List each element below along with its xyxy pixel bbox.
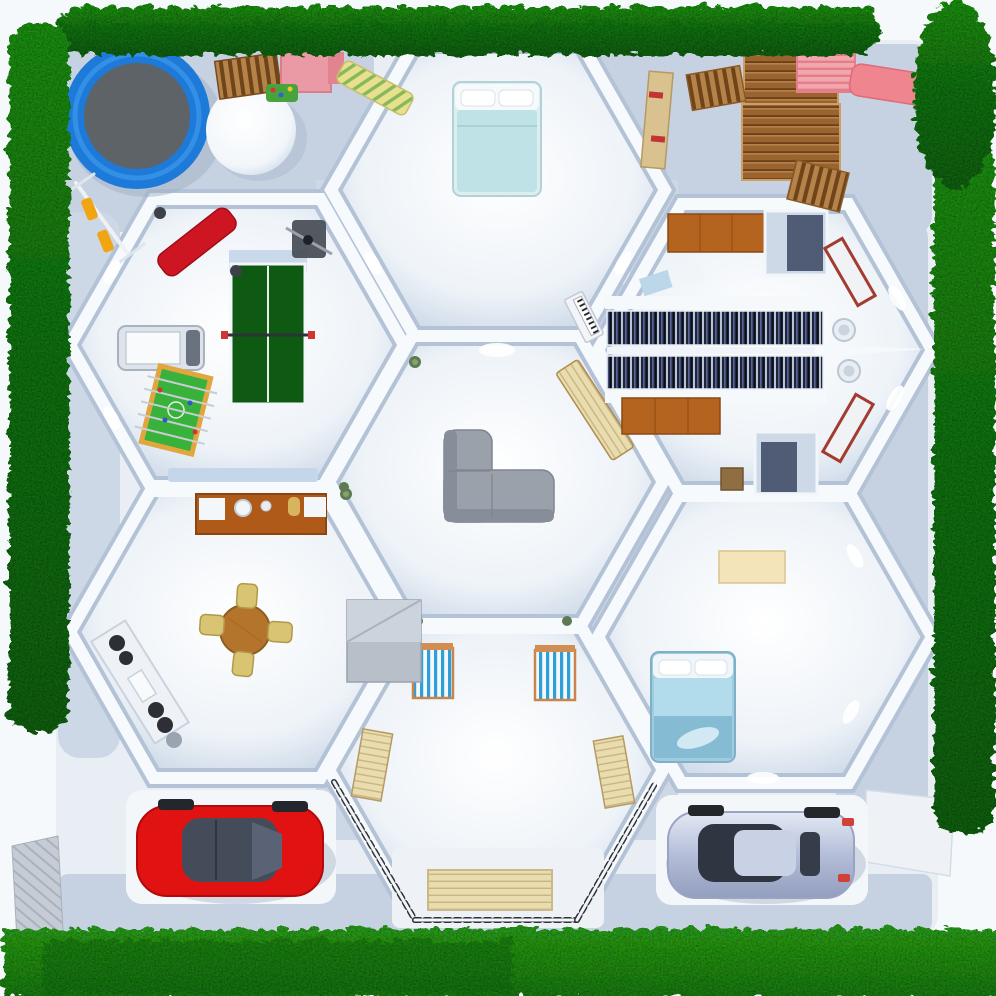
bed-south-pillow-right (695, 660, 727, 675)
dining-chair-north (236, 583, 258, 608)
toilet-south-bowl (844, 366, 855, 377)
shower-south-glass (761, 442, 797, 492)
silver-car-rear-glass (800, 832, 820, 876)
living-plant-west (339, 482, 349, 492)
bed-south-pillow-left (659, 660, 691, 675)
play-ball-blue (279, 93, 284, 98)
closet-wood-crate (721, 468, 743, 490)
bathroom-north-cabinet (668, 214, 764, 252)
patio-deck (428, 870, 552, 910)
patio-plant-right (562, 616, 572, 626)
doorway-living-north (479, 343, 515, 357)
hedge-top (55, 4, 877, 52)
play-ball-red (271, 88, 276, 93)
hedge-cone-northeast (910, 0, 994, 186)
living-plant-north-leaves (412, 359, 418, 365)
bed-north-pillow-right (499, 90, 533, 106)
clothes-rack-south (607, 356, 823, 389)
exercise-machine-seat (303, 235, 313, 245)
window-bedroom-south-bottom (747, 772, 779, 784)
kitchen-counter-board-2 (304, 497, 326, 517)
toilet-north-bowl (839, 325, 850, 336)
play-ball-yellow (288, 87, 293, 92)
dining-chair-east (267, 621, 292, 643)
wardrobe-cream (719, 551, 785, 583)
treadmill-belt (126, 332, 180, 364)
foosball-player-1 (158, 388, 163, 393)
climbing-board-strap-2 (651, 135, 665, 142)
foosball-player-4 (193, 430, 198, 435)
bed-north-duvet (457, 110, 537, 192)
kitchen-counter-board (199, 498, 225, 520)
closet-wall-middle (607, 347, 815, 354)
bed-south-duvet-upper (654, 678, 732, 716)
hedge-right (930, 142, 992, 830)
cooker-burner-4 (157, 717, 173, 733)
cooker-end-unit (166, 732, 182, 748)
lawn-bottom-dark (40, 938, 510, 990)
bed-north-pillow-left (461, 90, 495, 106)
hedge-left (6, 20, 66, 730)
foosball-player-3 (163, 418, 168, 423)
kitchen-sink-round (235, 500, 251, 516)
dining-chair-west (199, 614, 224, 636)
shower-north-glass (787, 215, 823, 271)
sofa-backrest-bottom (444, 509, 554, 522)
gameroom-sideboard (168, 468, 318, 482)
pingpong-net-end-right (308, 331, 315, 339)
silver-car-taillight-bottom (838, 874, 850, 882)
silver-car-taillight-top (842, 818, 854, 826)
pingpong-net-end-left (221, 331, 228, 339)
kitchen-gold-item (288, 497, 300, 516)
cooker-burner-2 (119, 651, 133, 665)
trampoline-mat (84, 63, 190, 169)
silver-car-roof (734, 830, 796, 876)
floor-plan-render (0, 0, 996, 996)
red-car-wheel-rear (272, 801, 308, 812)
kitchen-pot (261, 501, 271, 511)
dining-chair-south (232, 651, 254, 677)
deck-chair-right (535, 650, 575, 700)
floorplan-canvas (0, 0, 996, 996)
cooker-burner-1 (109, 635, 125, 651)
deck-chair-right-headrest (535, 645, 575, 652)
bathroom-south-cabinet (622, 398, 720, 434)
sofa-backrest-left (444, 430, 457, 522)
barbell-plate-right (230, 265, 242, 277)
silver-car-wheel-rear (804, 807, 840, 818)
silver-car-wheel-front (688, 805, 724, 816)
cooker-burner-3 (148, 702, 164, 718)
clothes-rack-north (607, 311, 823, 345)
climbing-board-strap-1 (649, 91, 663, 98)
foosball-player-2 (188, 401, 193, 406)
treadmill-console (186, 330, 200, 366)
barbell-plate-left (154, 207, 166, 219)
closet-wall-north (605, 296, 827, 309)
red-car-wheel-front (158, 799, 194, 810)
